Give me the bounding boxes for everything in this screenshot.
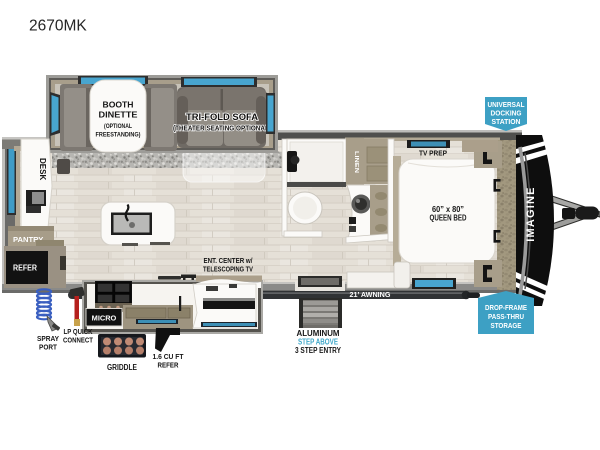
- svg-text:STATION: STATION: [492, 117, 521, 126]
- svg-text:DINETTE: DINETTE: [99, 110, 138, 120]
- svg-text:QUEEN BED: QUEEN BED: [430, 214, 467, 223]
- svg-text:TELESCOPING TV: TELESCOPING TV: [203, 265, 254, 274]
- svg-text:STORAGE: STORAGE: [491, 321, 522, 330]
- svg-text:REFER: REFER: [158, 361, 179, 370]
- svg-text:DROP-FRAME: DROP-FRAME: [485, 303, 527, 312]
- svg-text:(THEATER SEATING OPTIONAL): (THEATER SEATING OPTIONAL): [173, 126, 271, 133]
- svg-text:IMAGINE: IMAGINE: [525, 186, 537, 241]
- svg-text:DESK: DESK: [38, 158, 47, 180]
- svg-text:TRI-FOLD SOFA: TRI-FOLD SOFA: [186, 112, 259, 122]
- svg-text:BOOTH: BOOTH: [103, 100, 134, 110]
- svg-text:FREESTANDING): FREESTANDING): [96, 132, 141, 139]
- svg-text:2670MK: 2670MK: [29, 18, 87, 35]
- svg-text:CONNECT: CONNECT: [63, 336, 93, 345]
- svg-text:(OPTIONAL: (OPTIONAL: [104, 123, 132, 130]
- svg-text:LINEN: LINEN: [353, 151, 359, 173]
- svg-text:TV PREP: TV PREP: [419, 149, 447, 158]
- svg-text:REFER: REFER: [13, 264, 37, 273]
- svg-text:PORT: PORT: [39, 343, 57, 352]
- svg-text:GRIDDLE: GRIDDLE: [107, 363, 137, 372]
- svg-text:PASS-THRU: PASS-THRU: [488, 312, 524, 321]
- svg-text:21’ AWNING: 21’ AWNING: [350, 290, 391, 299]
- svg-text:MICRO: MICRO: [92, 314, 117, 323]
- svg-text:3 STEP ENTRY: 3 STEP ENTRY: [295, 346, 342, 355]
